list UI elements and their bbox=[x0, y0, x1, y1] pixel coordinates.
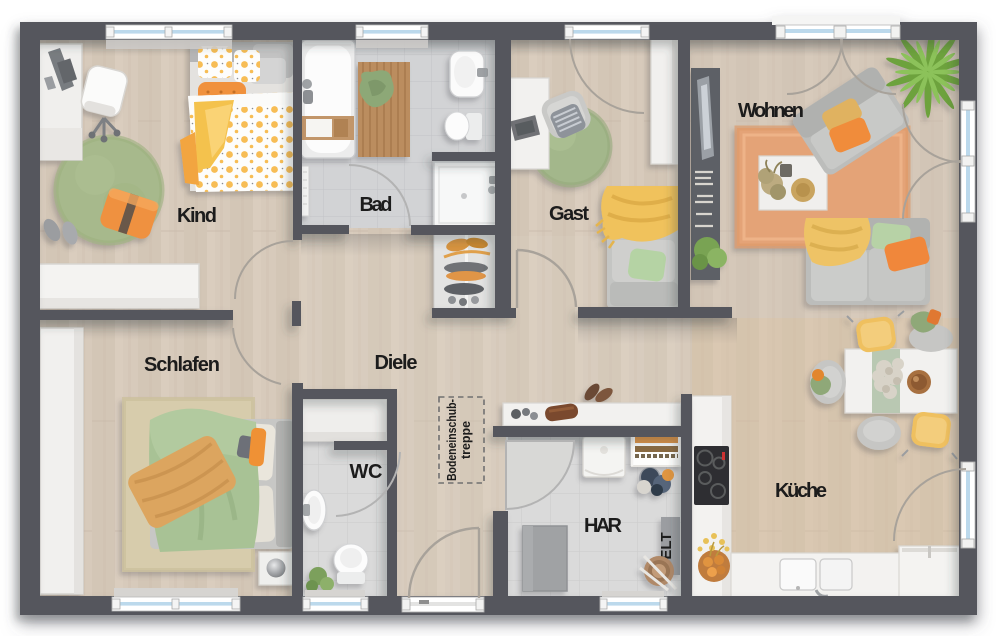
svg-text:Diele: Diele bbox=[375, 352, 418, 374]
svg-text:Küche: Küche bbox=[775, 480, 827, 502]
svg-text:Wohnen: Wohnen bbox=[738, 100, 804, 122]
svg-text:Bad: Bad bbox=[360, 194, 393, 216]
svg-text:Schlafen: Schlafen bbox=[144, 354, 220, 376]
svg-text:WC: WC bbox=[350, 461, 383, 483]
svg-text:HAR: HAR bbox=[584, 515, 623, 537]
svg-text:Gast: Gast bbox=[549, 203, 589, 225]
svg-text:Kind: Kind bbox=[177, 205, 217, 227]
svg-text:treppe: treppe bbox=[459, 421, 473, 459]
svg-text:ELT: ELT bbox=[658, 532, 675, 559]
svg-text:Bodeneinschub-: Bodeneinschub- bbox=[445, 399, 459, 481]
